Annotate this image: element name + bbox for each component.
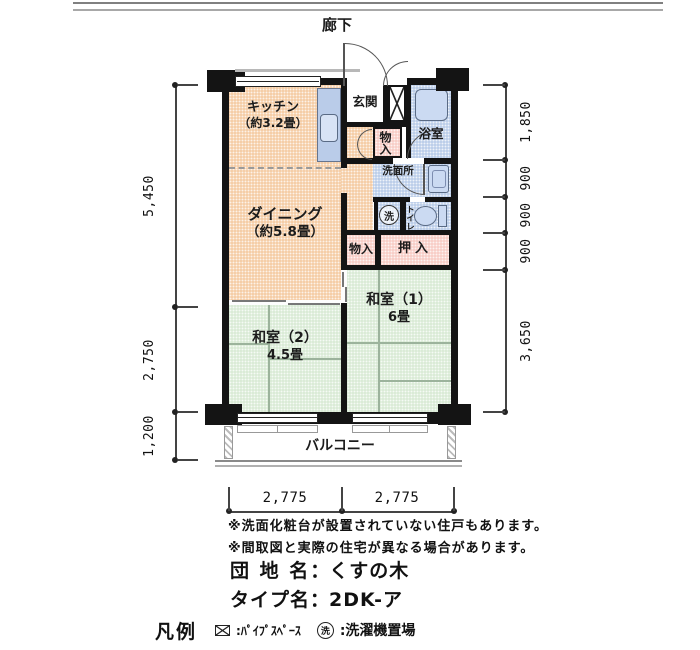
estate-name-row: 団 地 名 ： くすの木 <box>230 556 409 583</box>
dimension-line-right <box>505 85 507 412</box>
washing-machine-char: 洗 <box>384 208 394 223</box>
estate-name-value: くすの木 <box>329 556 409 583</box>
wall-segment <box>374 202 378 232</box>
balcony-side-post-left <box>224 426 233 459</box>
japanese2-label: 和室（2） 4.5畳 <box>229 330 341 364</box>
laundry-legend-icon: 洗 <box>317 622 334 639</box>
dim-right-1850: 1,850 <box>519 92 535 152</box>
legend-heading: 凡例 <box>155 617 197 644</box>
dimension-tick <box>483 159 505 161</box>
type-name-label: タイプ名 <box>230 585 310 612</box>
dimension-tick <box>178 459 198 461</box>
washroom-door-leaf <box>423 164 425 195</box>
dimension-tick <box>483 84 505 86</box>
toilet-tank <box>438 205 447 227</box>
corridor-line-inner <box>73 9 663 11</box>
wall-segment <box>407 78 451 85</box>
estate-name-label: 団 地 名 <box>230 556 310 583</box>
wall-segment <box>341 193 347 232</box>
sliding-door-line <box>342 272 344 287</box>
dim-left-5450: 5,450 <box>142 166 158 226</box>
dimension-tick <box>341 487 343 511</box>
type-name-colon: ： <box>310 585 329 612</box>
dim-bottom-right: 2,775 <box>367 490 427 505</box>
genkan-label: 玄関 <box>348 94 382 110</box>
balcony-sill-tick <box>277 425 278 433</box>
type-name-row: タイプ名 ： 2DK-ア <box>230 585 403 612</box>
bath-label: 浴室 <box>413 126 449 142</box>
sliding-door-line <box>232 300 286 302</box>
dimension-tick <box>483 196 505 198</box>
japanese1-label: 和室（1） 6畳 <box>347 292 451 326</box>
corridor-line-outer <box>73 2 663 4</box>
washing-machine-symbol: 洗 <box>379 205 399 225</box>
wall-segment <box>341 85 347 125</box>
dimension-tick <box>483 232 505 234</box>
kitchen-dining-divider <box>229 167 341 169</box>
type-name-value: 2DK-ア <box>329 585 403 612</box>
estate-name-colon: ： <box>310 556 329 583</box>
dimension-tick <box>178 84 198 86</box>
toilet-label: トイレ <box>405 203 414 232</box>
washbasin-bowl <box>432 170 446 188</box>
balcony-rail-inner <box>215 465 462 467</box>
dim-left-1200: 1,200 <box>142 406 158 466</box>
tatami-line <box>347 342 451 344</box>
balcony-window-left-midline <box>238 417 317 418</box>
wall-segment <box>425 197 451 202</box>
kitchen-name: キッチン <box>227 100 319 116</box>
dim-bottom-left: 2,775 <box>255 490 315 505</box>
pipe-space-x-icon <box>390 87 404 120</box>
dimension-tick <box>453 487 455 511</box>
entrance-door-arc <box>345 43 388 86</box>
kitchen-window-midline <box>237 81 319 82</box>
balcony-window-left <box>237 413 318 423</box>
balcony-window-right <box>352 413 428 423</box>
dim-right-3650: 3,650 <box>519 311 535 371</box>
window-sill-line <box>235 69 360 72</box>
japanese2-size: 4.5畳 <box>229 348 341 364</box>
tatami-line <box>380 380 451 382</box>
japanese2-name: 和室（2） <box>229 330 341 348</box>
corridor-label: 廊下 <box>303 16 371 35</box>
balcony-side-post-right <box>447 426 456 459</box>
dimension-tick <box>483 269 505 271</box>
legend-row: 凡例 :ﾊﾟｲﾌﾟｽﾍﾟｰｽ 洗 :洗濯機置場 <box>155 618 415 642</box>
dim-right-900b: 900 <box>519 195 535 235</box>
closet-dining-label: 物入 <box>347 242 375 257</box>
toilet-bowl <box>414 206 437 226</box>
dimension-tick <box>178 306 198 308</box>
floor-plan-page: 廊下 洗 <box>0 0 700 650</box>
bathtub <box>415 89 448 121</box>
dimension-tick <box>178 411 198 413</box>
dim-left-2750: 2,750 <box>142 330 158 390</box>
dimension-tick <box>483 411 505 413</box>
sliding-door-line <box>288 303 340 305</box>
dining-size: （約5.8畳） <box>229 224 341 241</box>
kitchen-label: キッチン （約3.2畳） <box>227 100 319 131</box>
note-layout: ※間取図と実際の住宅が異なる場合があります。 <box>228 537 534 556</box>
dining-name: ダイニング <box>229 205 341 224</box>
oshiire-label: 押入 <box>381 241 449 257</box>
legend-laundry-text: :洗濯機置場 <box>340 620 416 640</box>
closet-entrance-label: 物入 <box>379 129 391 157</box>
dim-right-900c: 900 <box>519 231 535 271</box>
laundry-legend-char: 洗 <box>321 624 330 637</box>
kitchen-sink <box>320 114 338 142</box>
dimension-line-left <box>175 85 177 460</box>
dim-right-900a: 900 <box>519 158 535 198</box>
kitchen-size: （約3.2畳） <box>227 116 319 131</box>
balcony-sill-tick <box>389 425 390 433</box>
balcony-label: バルコニー <box>280 438 400 456</box>
washroom-label: 洗面所 <box>375 165 421 178</box>
balcony-sill-right <box>352 425 428 433</box>
wall-segment <box>451 85 458 412</box>
meterbox-door-arc <box>383 61 408 86</box>
dimension-tick <box>228 487 230 511</box>
japanese1-size: 6畳 <box>347 310 451 326</box>
balcony-rail-outer <box>215 460 462 462</box>
pipe-space-icon <box>215 625 230 636</box>
legend-pipe-text: :ﾊﾟｲﾌﾟｽﾍﾟｰｽ <box>236 622 301 639</box>
wall-segment <box>222 85 229 412</box>
pipe-space-box <box>388 85 406 122</box>
note-washbasin: ※洗面化粧台が設置されていない住戸もあります。 <box>228 515 548 534</box>
entrance-door-leaf <box>343 43 345 86</box>
dining-label: ダイニング （約5.8畳） <box>229 205 341 241</box>
balcony-window-right-midline <box>353 417 427 418</box>
japanese1-name: 和室（1） <box>347 292 451 310</box>
